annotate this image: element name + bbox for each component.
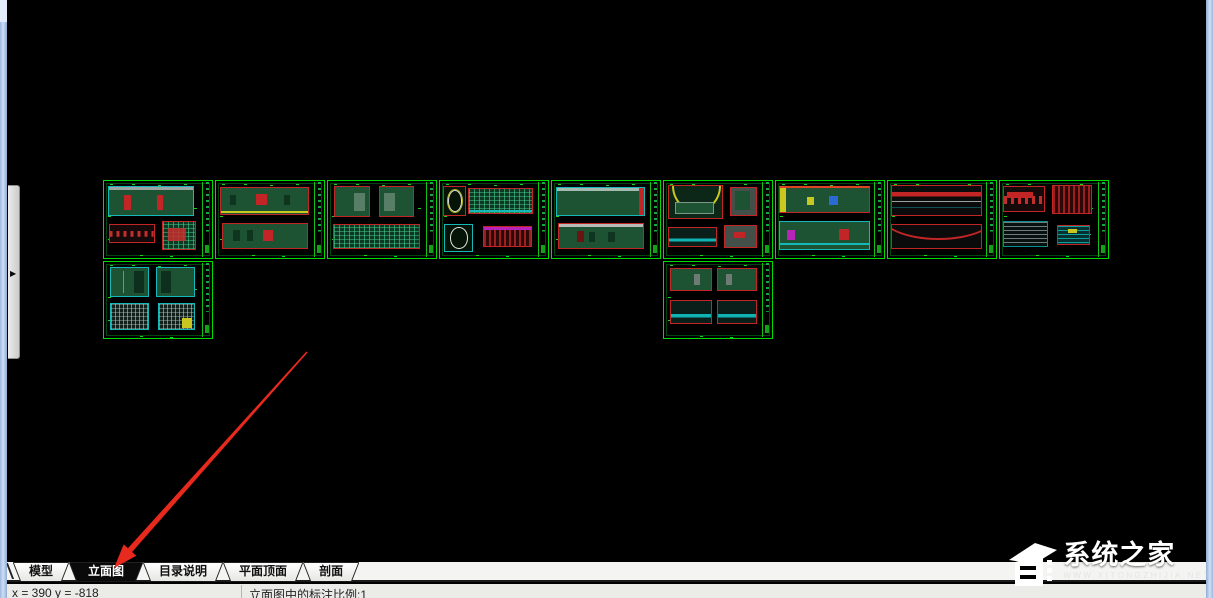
drawing-sheet-9[interactable]: [999, 180, 1109, 259]
sheet-panel: [717, 268, 757, 291]
sheet-panel: [668, 227, 717, 247]
drawing-sheet-1[interactable]: [103, 180, 213, 259]
sheet-panel: [556, 187, 645, 215]
drawing-sheet-5[interactable]: [551, 180, 661, 259]
cursor-coordinates: x = 390 y = -818: [12, 586, 99, 598]
sheet-panel: [730, 187, 757, 216]
sheet-panel: [891, 185, 982, 217]
sheet-panel: [110, 267, 149, 297]
drawing-sheet-4[interactable]: [439, 180, 549, 259]
sheet-panel: [558, 223, 643, 248]
window-border-left: [0, 0, 7, 598]
sheet-panel: [333, 224, 419, 249]
sheet-panel: [220, 187, 309, 215]
sheet-panel: [162, 221, 195, 250]
drawing-sheet-11[interactable]: [663, 261, 773, 339]
drawing-sheet-6[interactable]: [663, 180, 773, 259]
sheet-panel: [670, 268, 711, 291]
status-separator: [241, 585, 242, 598]
sheet-title-block: [762, 263, 771, 337]
dimension-ticks: [222, 184, 225, 185]
tab-section[interactable]: 剖面: [304, 563, 358, 581]
sheet-panel: [110, 303, 149, 330]
status-bar: x = 390 y = -818 立面图中的标注比例:1: [0, 584, 1213, 598]
sheet-panel: [891, 224, 982, 249]
tab-catalog-notes[interactable]: 目录说明: [144, 563, 222, 581]
drawing-sheet-3[interactable]: [327, 180, 437, 259]
dimension-ticks: [558, 184, 561, 185]
sheet-panel: [668, 185, 723, 219]
expand-arrow-icon: ▶: [10, 270, 16, 278]
layout-tabs: 模型立面图目录说明平面顶面剖面: [14, 562, 360, 579]
sheet-panel: [222, 223, 307, 249]
tab-plan-ceiling[interactable]: 平面顶面: [224, 563, 302, 581]
window-border-right: [1206, 0, 1213, 598]
sheet-title-block: [650, 182, 659, 257]
sheet-panel: [109, 224, 154, 242]
sheet-title-block: [202, 182, 211, 257]
sheet-panel: [483, 226, 532, 248]
sheet-panel: [724, 225, 756, 248]
sheet-title-block: [762, 182, 771, 257]
sheet-panel: [1003, 221, 1047, 247]
sheet-panel: [334, 186, 370, 217]
tab-elevation[interactable]: 立面图: [70, 563, 142, 581]
sheet-panel: [779, 186, 870, 214]
sheet-title-block: [1098, 182, 1107, 257]
layout-tab-bar: 模型立面图目录说明平面顶面剖面: [0, 562, 1213, 582]
sheet-panel: [1052, 185, 1092, 214]
sheet-title-block: [986, 182, 995, 257]
sheet-title-block: [874, 182, 883, 257]
sheet-panel: [670, 300, 711, 324]
sheet-title-block: [202, 263, 211, 337]
drawing-sheet-8[interactable]: [887, 180, 997, 259]
dimension-ticks: [334, 184, 337, 185]
sheet-panel: [379, 186, 415, 217]
tab-model[interactable]: 模型: [14, 563, 68, 581]
sheet-panel: [108, 186, 193, 217]
sheet-panel: [158, 303, 195, 330]
application-window: ▶ 模型立面图目录说明平面顶面剖面 x = 390 y = -818 立面图中的…: [0, 0, 1213, 598]
sheet-panel: [444, 224, 473, 252]
panel-expand-handle[interactable]: ▶: [8, 185, 20, 359]
sheet-panel: [468, 188, 533, 214]
sheet-panel: [779, 221, 870, 249]
sheet-panel: [1003, 186, 1045, 211]
sheet-panel: [717, 300, 757, 324]
dimension-ticks: [670, 265, 673, 266]
drawing-canvas[interactable]: [0, 0, 1213, 562]
sheet-title-block: [426, 182, 435, 257]
sheet-title-block: [538, 182, 547, 257]
sheet-title-block: [314, 182, 323, 257]
annotation-scale-text: 立面图中的标注比例:1: [249, 586, 367, 598]
dimension-ticks: [1006, 184, 1009, 185]
window-border-cap: [0, 0, 7, 22]
drawing-sheet-7[interactable]: [775, 180, 885, 259]
drawing-sheet-2[interactable]: [215, 180, 325, 259]
sheet-panel: [443, 186, 466, 217]
drawing-sheet-10[interactable]: [103, 261, 213, 339]
sheet-panel: [1057, 225, 1089, 245]
sheet-panel: [156, 267, 195, 297]
